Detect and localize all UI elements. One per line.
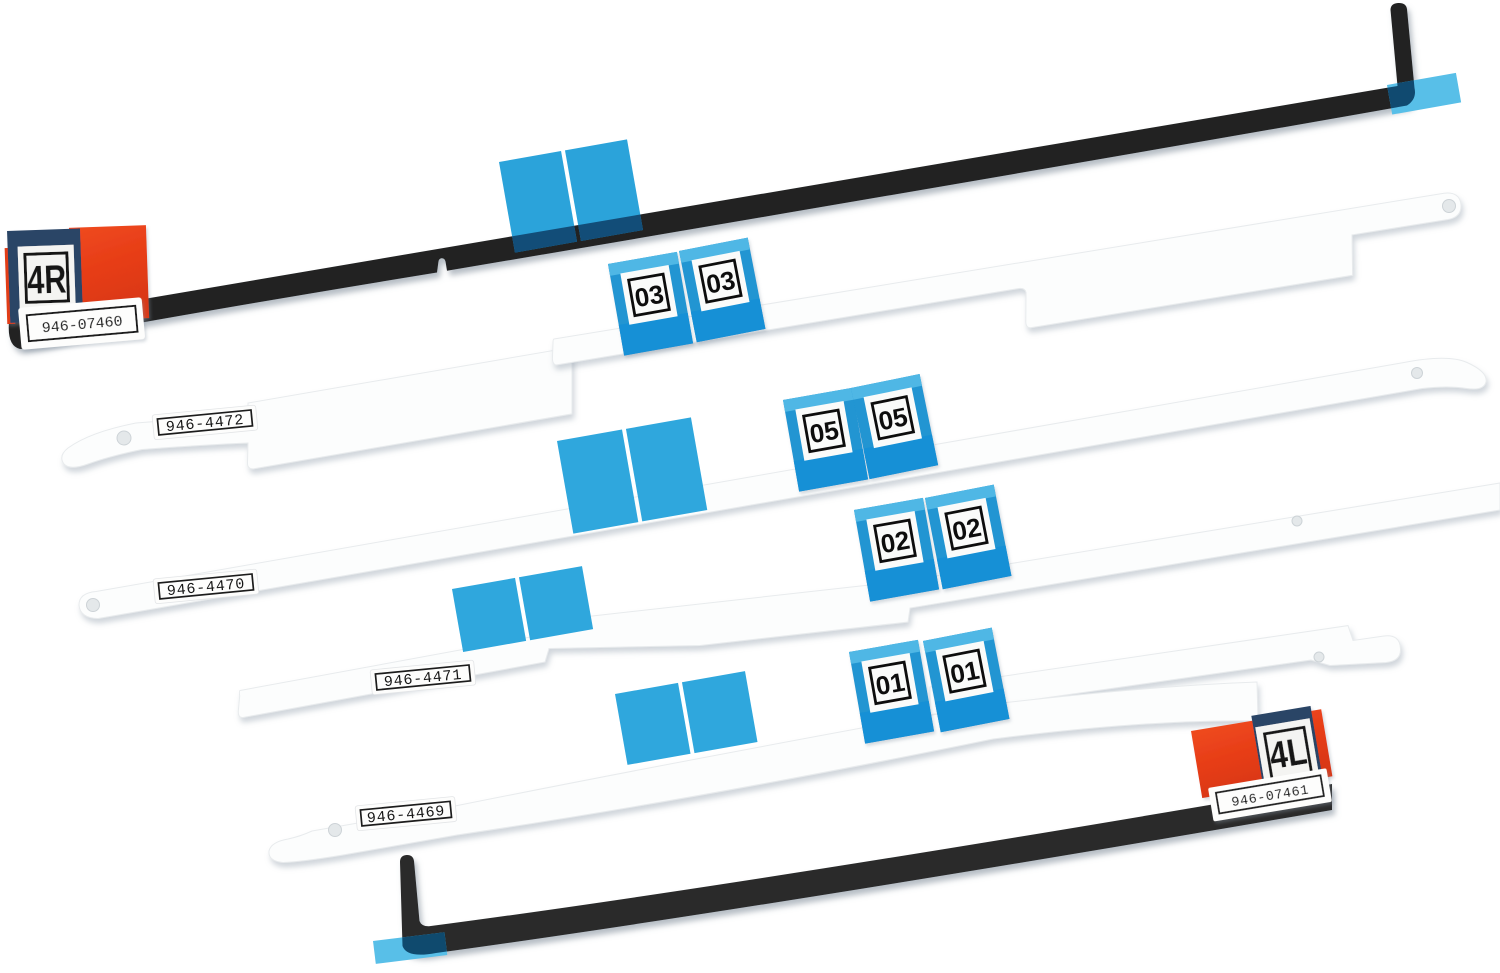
svg-text:05: 05: [876, 401, 910, 436]
svg-text:03: 03: [632, 279, 666, 314]
svg-text:01: 01: [873, 667, 907, 702]
svg-text:02: 02: [878, 525, 912, 560]
svg-text:02: 02: [950, 512, 984, 547]
svg-text:4L: 4L: [1266, 731, 1309, 779]
svg-text:01: 01: [948, 655, 982, 690]
svg-text:05: 05: [807, 415, 841, 450]
svg-text:4R: 4R: [27, 257, 68, 302]
svg-text:03: 03: [704, 265, 738, 300]
